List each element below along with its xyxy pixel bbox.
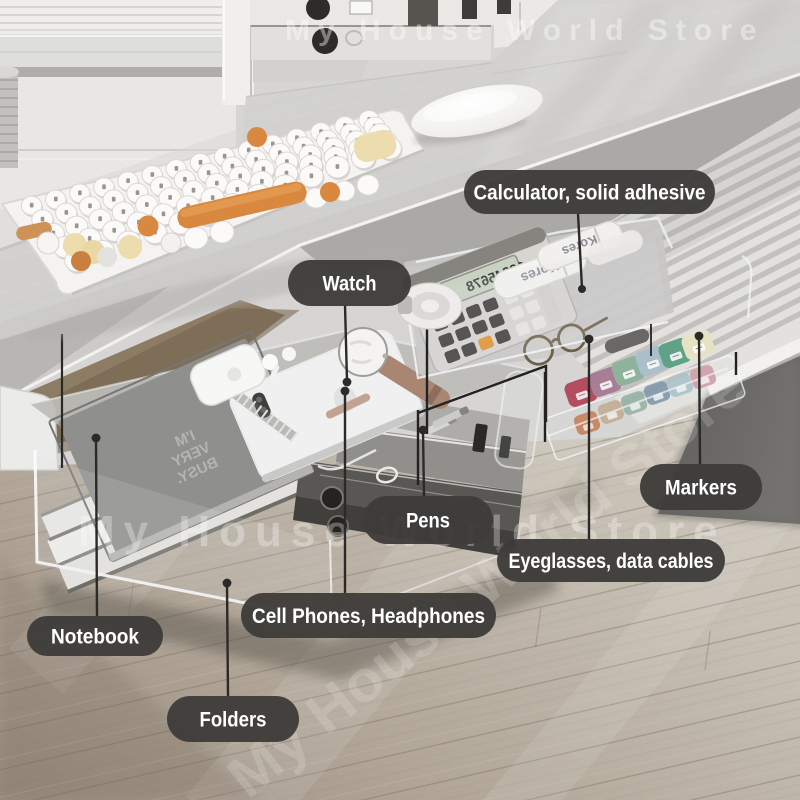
svg-text:Cell Phones, Headphones: Cell Phones, Headphones <box>252 605 485 628</box>
svg-text:My House World Store: My House World Store <box>285 14 764 47</box>
svg-text:Folders: Folders <box>200 709 267 732</box>
svg-text:Eyeglasses, data cables: Eyeglasses, data cables <box>509 550 714 573</box>
svg-text:Markers: Markers <box>665 477 737 500</box>
svg-text:Notebook: Notebook <box>51 626 139 649</box>
svg-text:Pens: Pens <box>406 510 450 533</box>
svg-text:Watch: Watch <box>323 273 377 296</box>
svg-text:Calculator, solid adhesive: Calculator, solid adhesive <box>474 182 706 205</box>
